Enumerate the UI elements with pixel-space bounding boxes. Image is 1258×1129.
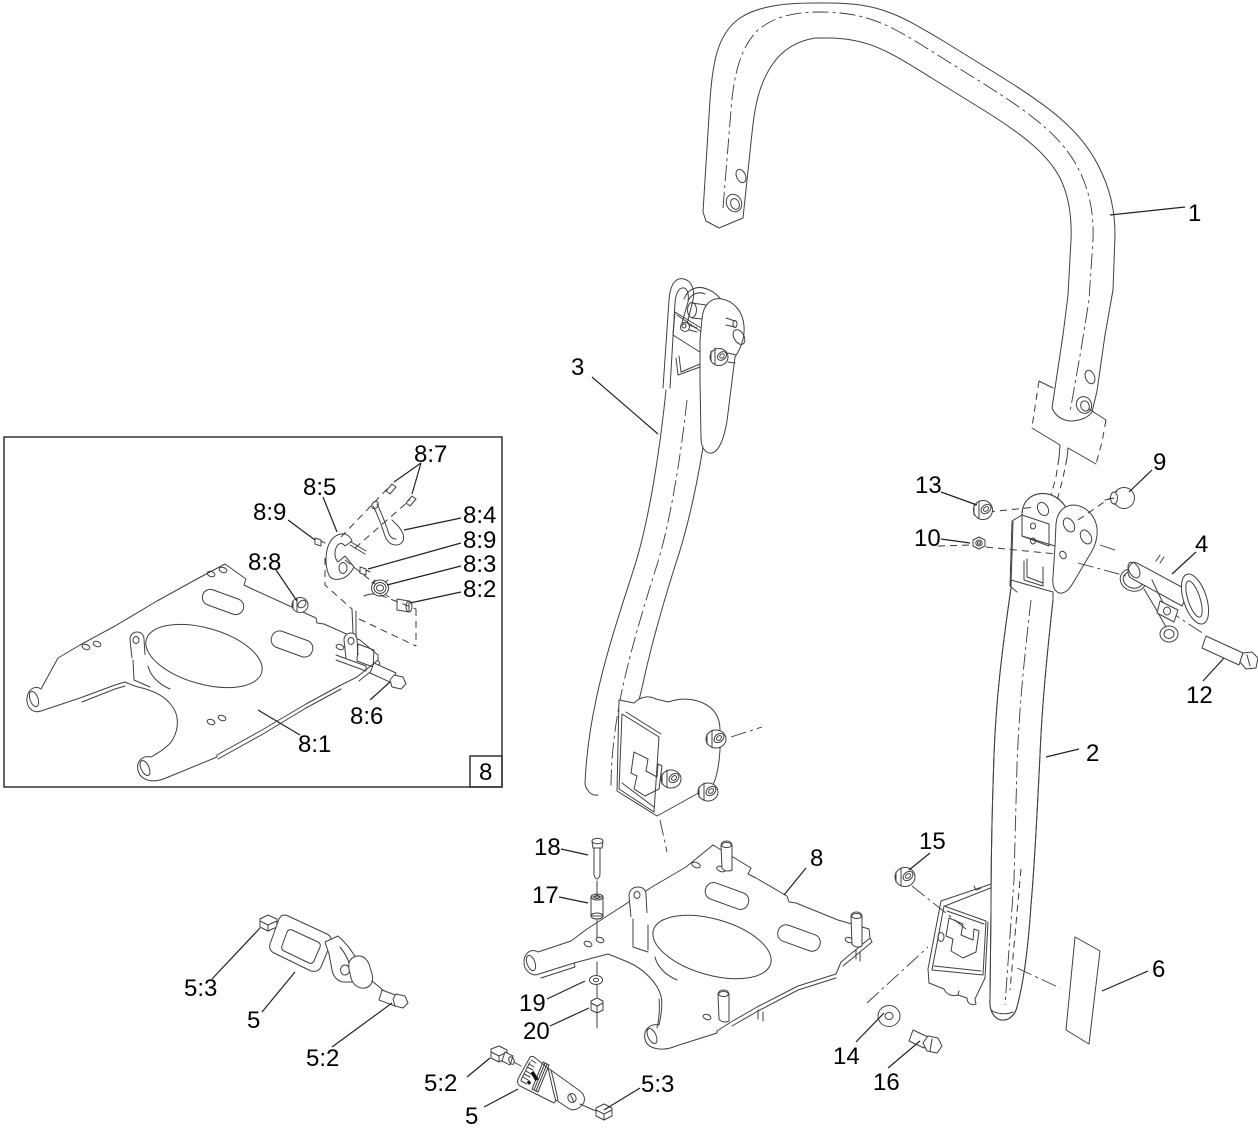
svg-text:5: 5: [465, 1103, 478, 1129]
svg-text:5:3: 5:3: [184, 975, 217, 1002]
svg-text:15: 15: [919, 828, 946, 855]
svg-text:8:5: 8:5: [303, 474, 336, 501]
svg-text:8:3: 8:3: [463, 551, 496, 578]
svg-text:20: 20: [523, 1018, 550, 1045]
svg-text:3: 3: [571, 354, 584, 381]
svg-text:14: 14: [833, 1043, 860, 1070]
svg-text:6: 6: [1152, 956, 1165, 983]
svg-text:9: 9: [1153, 449, 1166, 476]
svg-text:12: 12: [1186, 682, 1213, 709]
svg-text:8:6: 8:6: [350, 703, 383, 730]
svg-text:5:2: 5:2: [306, 1045, 339, 1072]
svg-text:2: 2: [1086, 740, 1099, 767]
svg-text:16: 16: [873, 1069, 900, 1096]
svg-text:8: 8: [810, 845, 823, 872]
svg-text:8:8: 8:8: [248, 549, 281, 576]
svg-text:5:3: 5:3: [641, 1071, 674, 1098]
svg-text:18: 18: [534, 834, 561, 861]
svg-text:1: 1: [1188, 200, 1201, 227]
svg-text:17: 17: [532, 882, 559, 909]
svg-text:4: 4: [1195, 531, 1208, 558]
svg-text:8:1: 8:1: [298, 731, 331, 758]
svg-text:5:2: 5:2: [424, 1070, 457, 1097]
svg-text:5: 5: [247, 1007, 260, 1034]
svg-text:8: 8: [479, 759, 492, 786]
svg-text:8:2: 8:2: [463, 576, 496, 603]
svg-text:8:9: 8:9: [463, 527, 496, 554]
svg-text:10: 10: [914, 525, 941, 552]
svg-text:8:4: 8:4: [463, 502, 496, 529]
svg-text:13: 13: [915, 472, 942, 499]
svg-text:8:7: 8:7: [414, 441, 447, 468]
svg-text:19: 19: [519, 990, 546, 1017]
svg-text:8:9: 8:9: [253, 499, 286, 526]
